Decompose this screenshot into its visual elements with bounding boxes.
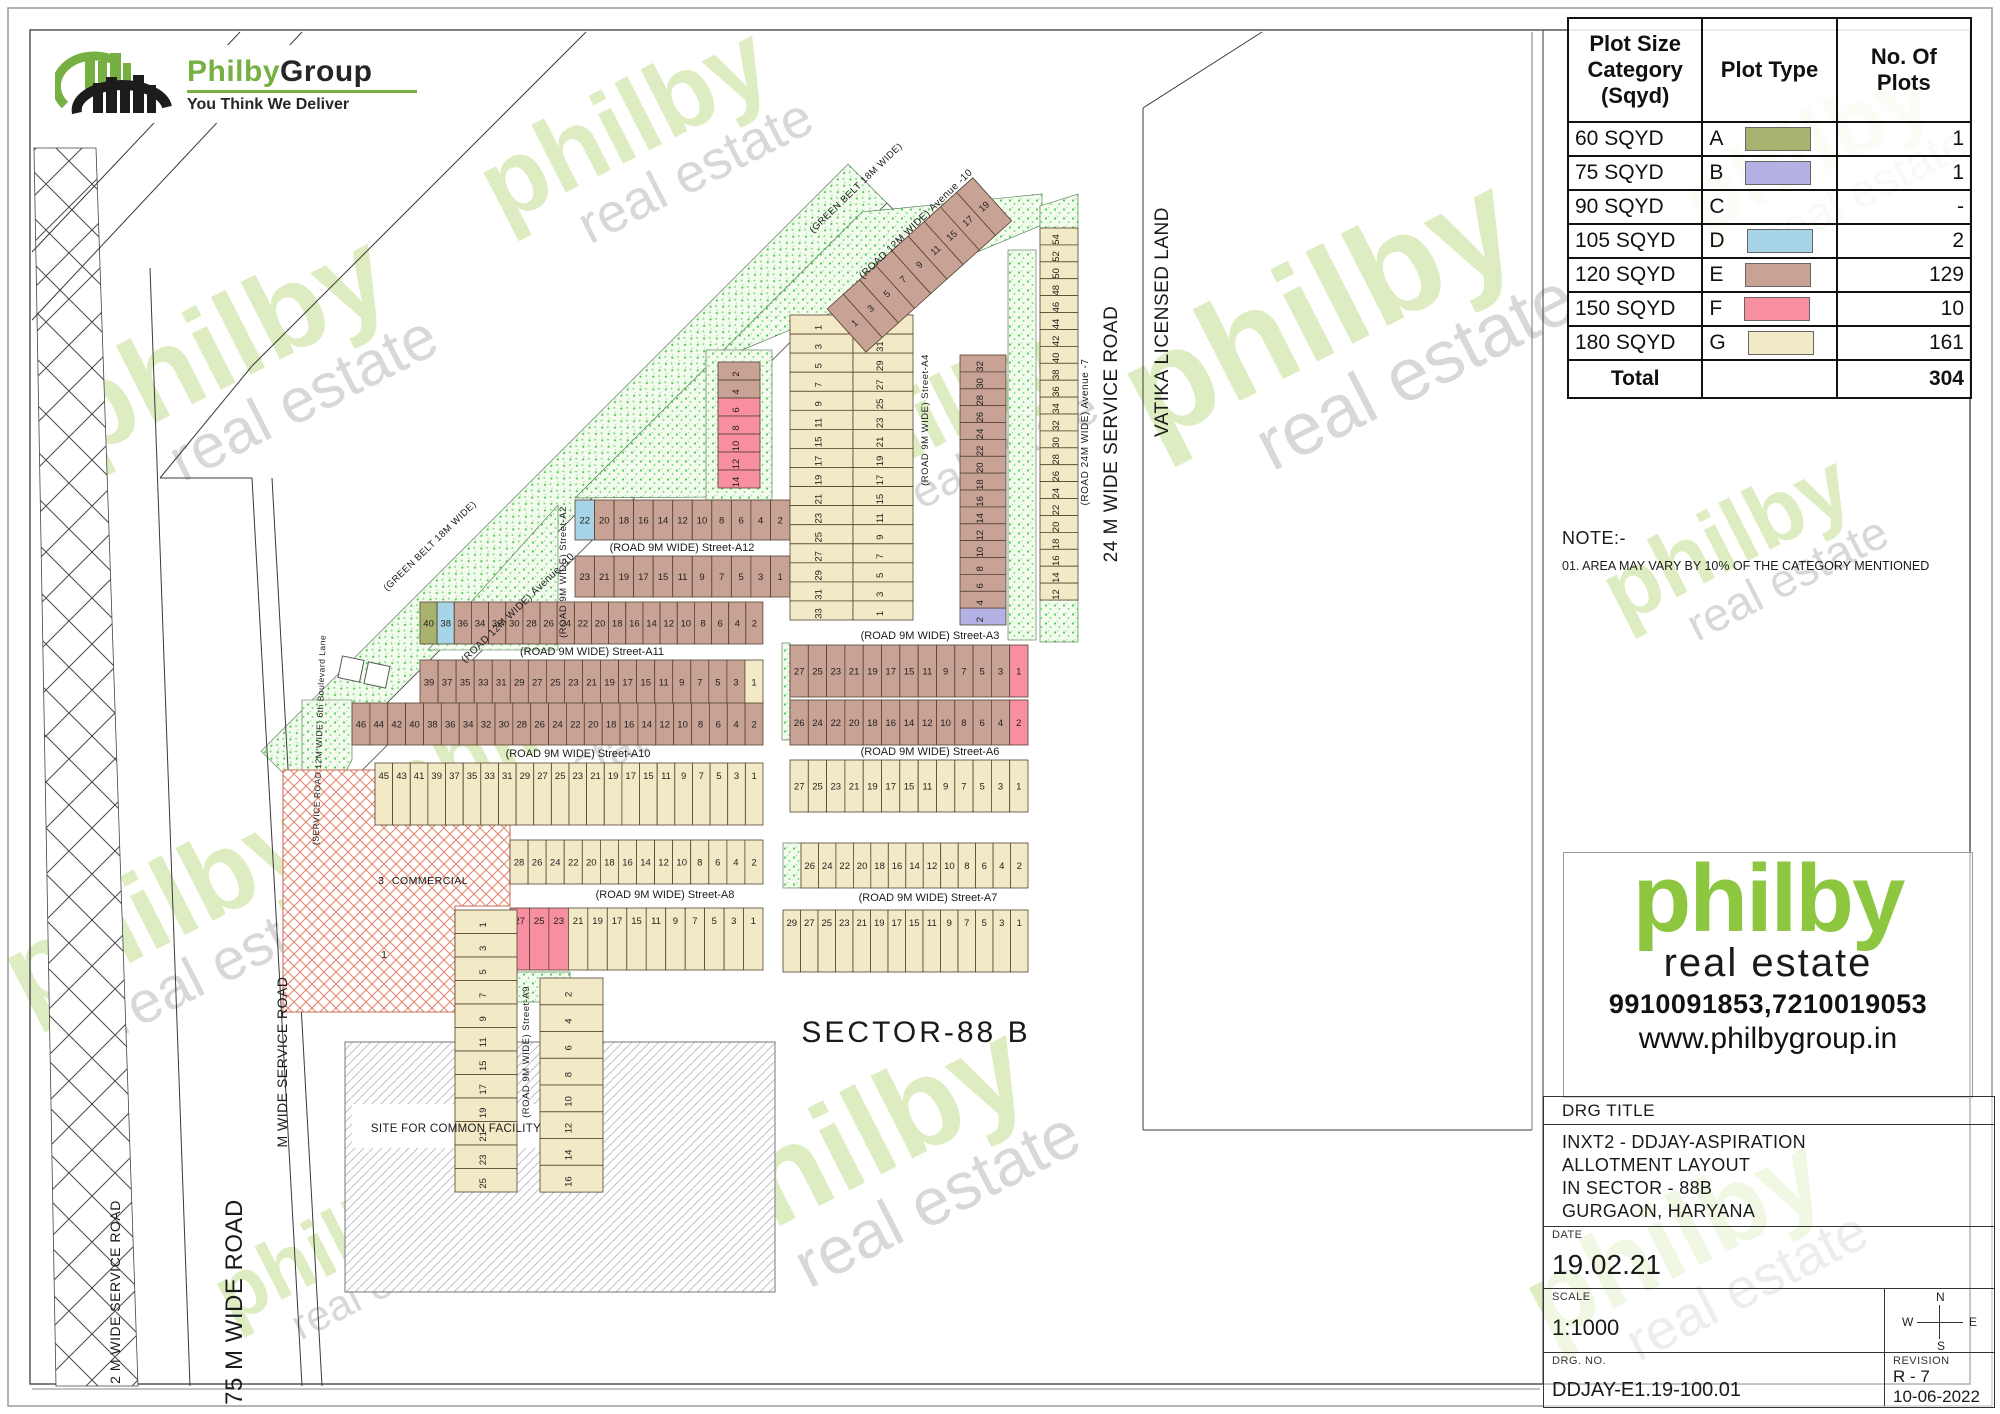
plot-number: 4 bbox=[735, 619, 740, 630]
plot-number: 36 bbox=[458, 619, 469, 630]
plot-number: 15 bbox=[640, 678, 651, 689]
plot-number: 16 bbox=[564, 1176, 575, 1187]
plot-number: 46 bbox=[356, 720, 367, 731]
legend-type: C bbox=[1702, 190, 1836, 224]
plot-number: 23 bbox=[478, 1155, 489, 1166]
plot-number: 21 bbox=[875, 437, 886, 448]
plot-number: 38 bbox=[427, 720, 438, 731]
plot-number: 15 bbox=[904, 667, 915, 678]
plot-number: 18 bbox=[874, 861, 885, 872]
plot-number: 18 bbox=[1051, 539, 1062, 550]
plot-number: 14 bbox=[1051, 572, 1062, 583]
road-label: M WIDE SERVICE ROAD bbox=[274, 976, 290, 1147]
plot-number: 22 bbox=[1051, 505, 1062, 516]
plot-number: 26 bbox=[534, 720, 545, 731]
plot-cell bbox=[853, 544, 913, 563]
plot-number: 18 bbox=[604, 858, 615, 869]
legend-color-swatch bbox=[1745, 161, 1811, 185]
legend-type: F bbox=[1702, 292, 1836, 326]
street-label: (ROAD 9M WIDE) Street-A12 bbox=[610, 542, 755, 554]
plot-number: 28 bbox=[517, 720, 528, 731]
plot-number: 7 bbox=[964, 918, 969, 929]
plot-number: 21 bbox=[573, 916, 584, 927]
plot-number: 36 bbox=[1051, 386, 1062, 397]
plot-number: 38 bbox=[1051, 369, 1062, 380]
plot-number: 4 bbox=[564, 1018, 575, 1023]
plot-number: 22 bbox=[580, 516, 591, 527]
plot-number: 24 bbox=[550, 858, 561, 869]
plot-number: 19 bbox=[874, 918, 885, 929]
plot-number: 6 bbox=[982, 861, 987, 872]
plot-number: 9 bbox=[947, 918, 952, 929]
plot-number: 9 bbox=[673, 916, 678, 927]
plot-number: 15 bbox=[658, 572, 669, 583]
plot-number: 23 bbox=[814, 513, 825, 524]
plot-number: 29 bbox=[814, 570, 825, 581]
legend-category: 150 SQYD bbox=[1568, 292, 1702, 326]
plot-number: 19 bbox=[814, 475, 825, 486]
plot-number: 34 bbox=[475, 619, 486, 630]
plot-number: 18 bbox=[619, 516, 630, 527]
plot-number: 35 bbox=[467, 771, 478, 782]
plot-number: 37 bbox=[442, 678, 453, 689]
plot-number: 12 bbox=[564, 1123, 575, 1134]
plot-number: 9 bbox=[681, 771, 686, 782]
legend-color-swatch bbox=[1744, 297, 1810, 321]
plot-number: 26 bbox=[794, 718, 805, 729]
plot-number: 2 bbox=[1017, 861, 1022, 872]
plot-number: 5 bbox=[814, 363, 825, 368]
plot-number: 10 bbox=[940, 718, 951, 729]
revision-value: R - 7 bbox=[1893, 1367, 1994, 1387]
plot-number: 3 bbox=[814, 344, 825, 349]
plot-number: 25 bbox=[822, 918, 833, 929]
plot-number: 40 bbox=[423, 619, 434, 630]
plot-number: 4 bbox=[734, 720, 739, 731]
plot-number: 31 bbox=[502, 771, 513, 782]
plot-number: 25 bbox=[550, 678, 561, 689]
date-value: 19.02.21 bbox=[1552, 1249, 1994, 1281]
plot-number: 19 bbox=[604, 678, 615, 689]
area-label: 3 bbox=[378, 875, 384, 887]
plot-number: 21 bbox=[849, 667, 860, 678]
plot-number: 14 bbox=[640, 858, 651, 869]
plot-number: 29 bbox=[875, 360, 886, 371]
plot-number: 21 bbox=[586, 678, 597, 689]
plot-number: 11 bbox=[814, 418, 825, 428]
legend-total-row: Total304 bbox=[1568, 360, 1971, 398]
plot-number: 17 bbox=[892, 918, 903, 929]
plot-cell bbox=[540, 1032, 603, 1059]
plot-number: 3 bbox=[875, 592, 886, 597]
plot-number: 21 bbox=[857, 918, 868, 929]
plot-number: 17 bbox=[625, 771, 636, 782]
plot-cell bbox=[853, 525, 913, 544]
brand-website: www.philbygroup.in bbox=[1564, 1022, 1972, 1056]
plot-number: 6 bbox=[975, 583, 986, 588]
legend-count: 10 bbox=[1837, 292, 1971, 326]
plot-number: 9 bbox=[699, 572, 704, 583]
plot-number: 22 bbox=[975, 446, 986, 457]
plot-number: 36 bbox=[445, 720, 456, 731]
plot-number: 21 bbox=[849, 782, 860, 793]
plot-number: 19 bbox=[592, 916, 603, 927]
legend-row: 180 SQYDG161 bbox=[1568, 326, 1971, 360]
plot-number: 21 bbox=[814, 494, 825, 505]
plot-number: 6 bbox=[715, 858, 720, 869]
plot-number: 44 bbox=[1051, 319, 1062, 330]
legend-count: 161 bbox=[1837, 326, 1971, 360]
plot-number: 11 bbox=[875, 513, 886, 523]
plot-number: 22 bbox=[570, 720, 581, 731]
plot-number: 27 bbox=[794, 667, 805, 678]
plot-number: 1 bbox=[814, 325, 825, 330]
plot-number: 12 bbox=[922, 718, 933, 729]
note-block: NOTE:- 01. AREA MAY VARY BY 10% OF THE C… bbox=[1562, 528, 1962, 573]
street-label: (ROAD 9M WIDE) Street-A7 bbox=[859, 892, 998, 904]
plot-number: 22 bbox=[831, 718, 842, 729]
drg-no-cell: DRG. NO. DDJAY-E1.19-100.01 REVISION R -… bbox=[1544, 1353, 1994, 1406]
plot-number: 16 bbox=[622, 858, 633, 869]
plot-number: 16 bbox=[885, 718, 896, 729]
plot-number: 8 bbox=[564, 1072, 575, 1077]
plot-number: 26 bbox=[975, 412, 986, 423]
plot-number: 1 bbox=[1016, 667, 1021, 678]
plot-number: 14 bbox=[731, 477, 742, 488]
plot-number: 1 bbox=[752, 771, 757, 782]
plot-cell bbox=[540, 1005, 603, 1032]
plot-number: 2 bbox=[1016, 718, 1021, 729]
plot-number: 19 bbox=[608, 771, 619, 782]
legend-color-swatch bbox=[1745, 127, 1811, 151]
legend-category: 180 SQYD bbox=[1568, 326, 1702, 360]
legend-type: D bbox=[1702, 224, 1836, 258]
logo-buildings-icon bbox=[55, 47, 175, 121]
legend-category: 60 SQYD bbox=[1568, 122, 1702, 156]
plot-number: 12 bbox=[677, 516, 688, 527]
plot-number: 24 bbox=[552, 720, 563, 731]
plot-number: 27 bbox=[814, 551, 825, 562]
street-label: (ROAD 9M WIDE) Street-A10 bbox=[506, 748, 651, 760]
plot-number: 12 bbox=[658, 858, 669, 869]
plot-number: 24 bbox=[822, 861, 833, 872]
title-line-4: GURGAON, HARYANA bbox=[1562, 1200, 1994, 1223]
legend-row: 150 SQYDF10 bbox=[1568, 292, 1971, 326]
plot-number: 14 bbox=[658, 516, 669, 527]
legend-header-type: Plot Type bbox=[1702, 18, 1836, 122]
plot-number: 15 bbox=[478, 1061, 489, 1072]
plot-number: 54 bbox=[1051, 234, 1062, 245]
legend-row: 90 SQYDC- bbox=[1568, 190, 1971, 224]
plot-number: 25 bbox=[875, 399, 886, 410]
legend-count: 1 bbox=[1837, 156, 1971, 190]
brand-sub: real estate bbox=[1564, 943, 1972, 983]
plot-number: 8 bbox=[961, 718, 966, 729]
road-label: 24 M WIDE SERVICE ROAD bbox=[1101, 306, 1122, 563]
legend-count: 129 bbox=[1837, 258, 1971, 292]
legend-category: 105 SQYD bbox=[1568, 224, 1702, 258]
plot-number: 15 bbox=[643, 771, 654, 782]
street-label: (ROAD 9M WIDE) Street-A8 bbox=[596, 889, 735, 901]
compass-west: W bbox=[1902, 1315, 1913, 1329]
plot-number: 14 bbox=[642, 720, 653, 731]
plot-number: 5 bbox=[716, 771, 721, 782]
plot-number: 27 bbox=[804, 918, 815, 929]
plot-number: 2 bbox=[731, 371, 742, 376]
logo-wordmark: PhilbyGroup bbox=[187, 55, 417, 89]
plot-number: 33 bbox=[478, 678, 489, 689]
legend-color-swatch bbox=[1748, 331, 1814, 355]
plot-number: 9 bbox=[943, 782, 948, 793]
plot-number: 7 bbox=[692, 916, 697, 927]
plot-number: 8 bbox=[698, 720, 703, 731]
plot-number: 20 bbox=[588, 720, 599, 731]
plot-number: 17 bbox=[885, 667, 896, 678]
plot-number: 7 bbox=[875, 554, 886, 559]
plot-number: 8 bbox=[964, 861, 969, 872]
plot-number: 40 bbox=[1051, 353, 1062, 364]
plot-number: 20 bbox=[975, 462, 986, 473]
plot-number: 14 bbox=[564, 1150, 575, 1161]
plot-number: 29 bbox=[520, 771, 531, 782]
legend-category: 120 SQYD bbox=[1568, 258, 1702, 292]
brand-name: philby bbox=[1564, 855, 1972, 943]
legend-row: 75 SQYDB1 bbox=[1568, 156, 1971, 190]
plot-number: 8 bbox=[700, 619, 705, 630]
plot-number: 5 bbox=[738, 572, 743, 583]
plot-number: 15 bbox=[814, 437, 825, 448]
note-item: 01. AREA MAY VARY BY 10% OF THE CATEGORY… bbox=[1562, 559, 1962, 573]
plot-number: 27 bbox=[875, 379, 886, 390]
plot-number: 7 bbox=[478, 993, 489, 998]
plot-number: 1 bbox=[778, 572, 783, 583]
drawing-title: INXT2 - DDJAY-ASPIRATION ALLOTMENT LAYOU… bbox=[1544, 1125, 1994, 1227]
legend-category: 90 SQYD bbox=[1568, 190, 1702, 224]
logo-rule bbox=[187, 90, 417, 93]
plot-legend-table: Plot Size Category (Sqyd) Plot Type No. … bbox=[1567, 17, 1972, 399]
legend-color-swatch bbox=[1747, 229, 1813, 253]
plot-number: 5 bbox=[715, 678, 720, 689]
plot-number: 15 bbox=[909, 918, 920, 929]
plot-number: 9 bbox=[875, 535, 886, 540]
plot-number: 12 bbox=[731, 459, 742, 470]
brand-phone: 9910091853,7210019053 bbox=[1564, 989, 1972, 1020]
plot-number: 30 bbox=[499, 720, 510, 731]
date-cell: DATE 19.02.21 bbox=[1544, 1227, 1994, 1289]
plot-cell bbox=[853, 582, 913, 601]
revision-date: 10-06-2022 bbox=[1893, 1387, 1994, 1407]
plot-number: 3 bbox=[758, 572, 763, 583]
drg-title-label: DRG TITLE bbox=[1544, 1097, 1994, 1125]
plot-number: 3 bbox=[999, 918, 1004, 929]
plot-number: 12 bbox=[975, 530, 986, 541]
plot-number: 21 bbox=[590, 771, 601, 782]
legend-count: 2 bbox=[1837, 224, 1971, 258]
legend-header-category: Plot Size Category (Sqyd) bbox=[1568, 18, 1702, 122]
plot-number: 14 bbox=[975, 513, 986, 524]
compass-east: E bbox=[1969, 1315, 1977, 1329]
plot-number: 37 bbox=[449, 771, 460, 782]
plot-number: 33 bbox=[814, 608, 825, 619]
plot-cell bbox=[790, 391, 853, 410]
plot-number: 7 bbox=[961, 667, 966, 678]
plot-number: 28 bbox=[514, 858, 525, 869]
plot-cell bbox=[455, 910, 517, 934]
plot-number: 26 bbox=[532, 858, 543, 869]
legend-total-cell bbox=[1702, 360, 1836, 398]
plot-number: 17 bbox=[814, 456, 825, 467]
revision-cell: REVISION R - 7 10-06-2022 bbox=[1884, 1353, 1994, 1406]
road-label: 75 M WIDE ROAD bbox=[221, 1199, 248, 1405]
legend-color-swatch bbox=[1745, 263, 1811, 287]
plot-number: 3 bbox=[478, 946, 489, 951]
plot-number: 41 bbox=[414, 771, 425, 782]
plot-number: 25 bbox=[534, 916, 545, 927]
plot-number: 6 bbox=[731, 407, 742, 412]
plot-number: 2 bbox=[752, 619, 757, 630]
plot-number: 33 bbox=[484, 771, 495, 782]
plot-number: 2 bbox=[751, 720, 756, 731]
legend-count: - bbox=[1837, 190, 1971, 224]
compass-north: N bbox=[1936, 1290, 1945, 1304]
plot-number: 48 bbox=[1051, 285, 1062, 296]
plot-number: 10 bbox=[677, 720, 688, 731]
plot-number: 11 bbox=[661, 771, 671, 782]
plot-number: 32 bbox=[481, 720, 492, 731]
plot-number: 24 bbox=[812, 718, 823, 729]
plot-number: 1 bbox=[1017, 918, 1022, 929]
plot-number: 9 bbox=[814, 401, 825, 406]
plot-number: 5 bbox=[980, 782, 985, 793]
plot-number: 29 bbox=[787, 918, 798, 929]
plot-number: 4 bbox=[975, 600, 986, 605]
plot-number: 16 bbox=[975, 496, 986, 507]
legend-category: 75 SQYD bbox=[1568, 156, 1702, 190]
scale-cell: SCALE 1:1000 N S W E bbox=[1544, 1289, 1994, 1353]
plot-number: 20 bbox=[849, 718, 860, 729]
plot-number: 3 bbox=[998, 667, 1003, 678]
plot-number: 12 bbox=[663, 619, 674, 630]
legend-row: 120 SQYDE129 bbox=[1568, 258, 1971, 292]
plot-number: 1 bbox=[1016, 782, 1021, 793]
plot-number: 26 bbox=[1051, 471, 1062, 482]
plot-number: 18 bbox=[606, 720, 617, 731]
plot-number: 27 bbox=[537, 771, 548, 782]
road-label: VATIKA LICENSED LAND bbox=[1152, 207, 1173, 437]
plot-number: 6 bbox=[564, 1045, 575, 1050]
plot-number: 4 bbox=[998, 718, 1003, 729]
plot-number: 26 bbox=[543, 619, 554, 630]
plot-number: 10 bbox=[564, 1096, 575, 1107]
plot-number: 35 bbox=[460, 678, 471, 689]
legend-type: E bbox=[1702, 258, 1836, 292]
plot-cell bbox=[540, 978, 603, 1005]
plot-number: 34 bbox=[1051, 403, 1062, 414]
plot-number: 19 bbox=[875, 456, 886, 467]
plot-number: 15 bbox=[875, 494, 886, 505]
plot-number: 3 bbox=[998, 782, 1003, 793]
street-label: (ROAD 9M WIDE) Street-A3 bbox=[861, 630, 1000, 642]
plot-number: 40 bbox=[409, 720, 420, 731]
plot-number: 19 bbox=[867, 667, 878, 678]
plot-number: 16 bbox=[892, 861, 903, 872]
legend-total-cell: Total bbox=[1568, 360, 1702, 398]
plot-number: 4 bbox=[999, 861, 1004, 872]
plot-number: 14 bbox=[909, 861, 920, 872]
plot-number: 9 bbox=[943, 667, 948, 678]
plot-number: 11 bbox=[651, 916, 661, 927]
plot-number: 11 bbox=[922, 782, 932, 793]
plot-number: 22 bbox=[568, 858, 579, 869]
plot-number: 20 bbox=[599, 516, 610, 527]
plot-number: 4 bbox=[733, 858, 738, 869]
plot-number: 7 bbox=[697, 678, 702, 689]
plot-number: 20 bbox=[857, 861, 868, 872]
plot-cell bbox=[853, 563, 913, 582]
plot-number: 30 bbox=[975, 378, 986, 389]
plot-number: 8 bbox=[697, 858, 702, 869]
legend-row: 105 SQYDD2 bbox=[1568, 224, 1971, 258]
plot-number: 26 bbox=[804, 861, 815, 872]
plot-number: 31 bbox=[496, 678, 507, 689]
plot-number: 17 bbox=[638, 572, 649, 583]
plot-number: 2 bbox=[975, 617, 986, 622]
plot-number: 5 bbox=[980, 667, 985, 678]
plot-number: 11 bbox=[478, 1037, 489, 1047]
plot-number: 24 bbox=[975, 429, 986, 440]
area-label: SITE FOR COMMON FACILITY bbox=[371, 1123, 541, 1135]
plot-cell bbox=[455, 981, 517, 1005]
plot-number: 8 bbox=[975, 566, 986, 571]
plot-number: 28 bbox=[526, 619, 537, 630]
plot-number: 7 bbox=[961, 782, 966, 793]
plot-number: 34 bbox=[463, 720, 474, 731]
drawing-sheet: philbyreal estatephilbyreal estatephilby… bbox=[0, 0, 2000, 1414]
plot-number: 18 bbox=[867, 718, 878, 729]
plot-number: 4 bbox=[731, 389, 742, 394]
area-label: COMMERCIAL bbox=[392, 875, 468, 887]
plot-number: 24 bbox=[1051, 488, 1062, 499]
plot-number: 8 bbox=[719, 516, 724, 527]
revision-label: REVISION bbox=[1893, 1355, 1994, 1367]
plot-number: 25 bbox=[812, 667, 823, 678]
plot-number: 28 bbox=[975, 395, 986, 406]
plot-number: 23 bbox=[839, 918, 850, 929]
philby-group-logo: PhilbyGroup You Think We Deliver bbox=[55, 45, 451, 123]
plot-number: 1 bbox=[751, 678, 756, 689]
plot-number: 8 bbox=[731, 425, 742, 430]
legend-total-cell: 304 bbox=[1837, 360, 1971, 398]
plot-cell bbox=[790, 372, 853, 391]
plot-cell bbox=[455, 957, 517, 981]
street-label: (ROAD 9M WIDE) Street-A11 bbox=[520, 646, 664, 658]
plot-number: 6 bbox=[717, 619, 722, 630]
plot-number: 23 bbox=[580, 572, 591, 583]
plot-number: 6 bbox=[716, 720, 721, 731]
plot-number: 25 bbox=[814, 532, 825, 543]
plot-number: 18 bbox=[975, 479, 986, 490]
plot-number: 46 bbox=[1051, 302, 1062, 313]
plot-number: 11 bbox=[678, 572, 688, 583]
plot-number: 4 bbox=[758, 516, 763, 527]
plot-number: 16 bbox=[624, 720, 635, 731]
plot-cell bbox=[455, 1004, 517, 1028]
plot-number: 10 bbox=[681, 619, 692, 630]
legend-type: A bbox=[1702, 122, 1836, 156]
plot-number: 5 bbox=[712, 916, 717, 927]
plot-number: 2 bbox=[778, 516, 783, 527]
plot-number: 11 bbox=[659, 678, 669, 689]
